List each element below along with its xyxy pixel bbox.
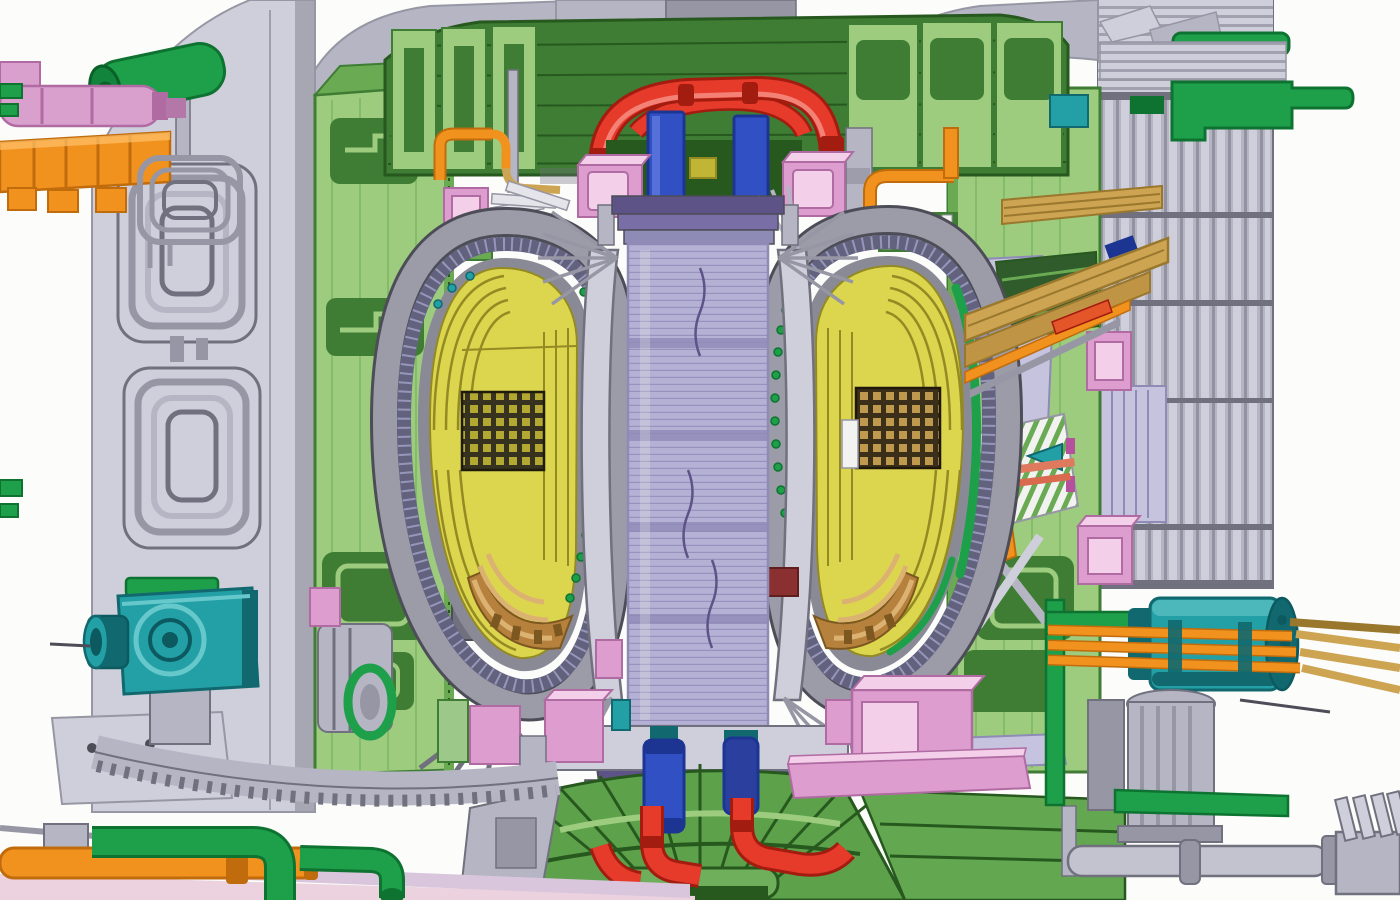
pipe-coupling	[642, 836, 664, 848]
white-panel	[842, 420, 858, 468]
pipe-coupling	[732, 820, 752, 832]
green-tab	[0, 480, 22, 496]
tube-bundle	[1100, 42, 1286, 80]
pink-pipe	[0, 86, 186, 126]
port-bellows	[318, 624, 392, 736]
green-beam	[1115, 790, 1288, 816]
feeder-box	[1087, 332, 1131, 390]
feeder-box	[1078, 516, 1140, 584]
equatorial-port-grid	[462, 392, 544, 470]
feeder-box	[596, 640, 622, 678]
green-tab	[0, 104, 18, 116]
green-tab	[0, 504, 18, 517]
lavender-ribbed-panel	[1100, 386, 1166, 522]
teal-box	[1050, 95, 1088, 127]
green-tab	[0, 84, 22, 98]
small-box	[690, 158, 716, 178]
equatorial-port-grid	[856, 388, 940, 468]
iter-tokamak-cutaway	[0, 0, 1400, 900]
green-duct-joint	[1130, 96, 1164, 114]
probe-needle	[50, 644, 90, 646]
small-magenta-part	[1066, 438, 1075, 454]
cutaway-diagram	[0, 0, 1400, 900]
maroon-stub	[766, 568, 798, 596]
pipe-coupling	[742, 82, 758, 104]
feeder-box	[310, 588, 340, 626]
pipe-coupling	[678, 84, 694, 106]
